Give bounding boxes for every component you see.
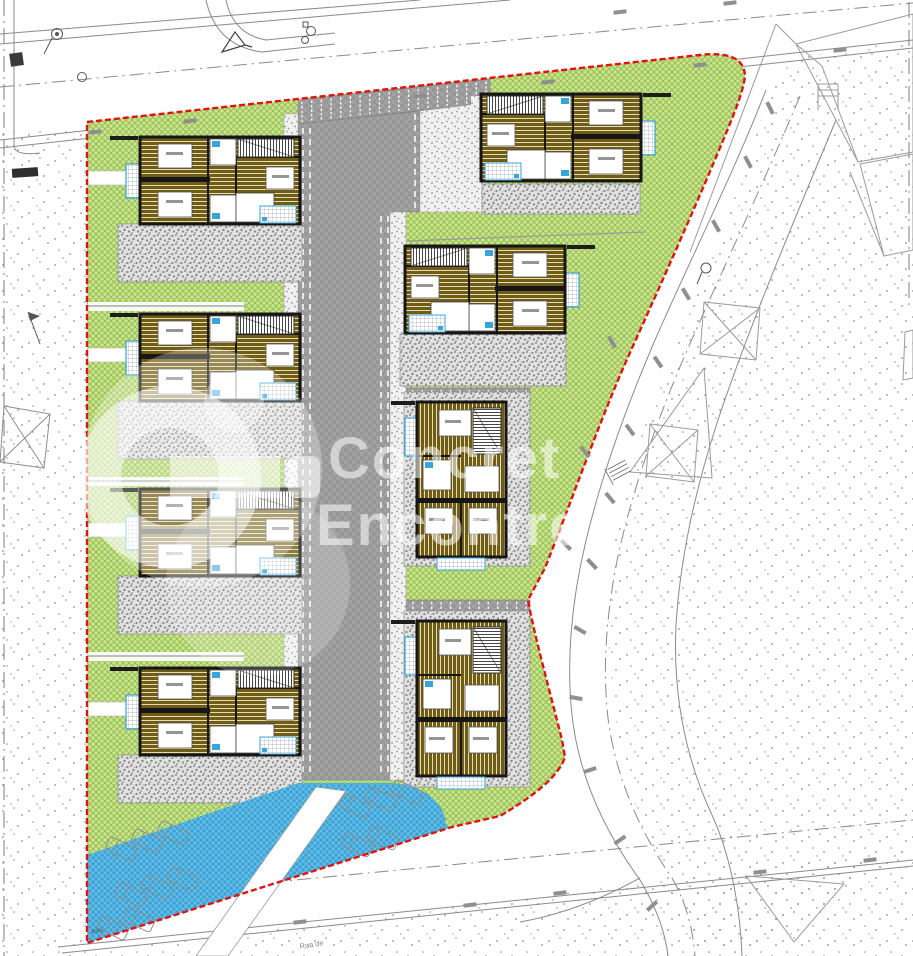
fixture — [212, 141, 220, 147]
side-porch — [641, 121, 655, 155]
site-plan-drawing: RSU Concret Encontre. — [0, 0, 913, 956]
junction-curve-1 — [206, 0, 335, 52]
room-label — [166, 329, 183, 332]
party-wall-stub — [110, 667, 138, 671]
room-label — [445, 420, 461, 423]
room-label — [522, 309, 539, 312]
room-label — [416, 284, 433, 287]
utility-symbol-1 — [78, 73, 87, 82]
interior-wall — [140, 708, 210, 713]
room-label — [445, 639, 461, 642]
bed — [589, 149, 623, 174]
gravel-apron — [482, 184, 640, 214]
bed — [589, 101, 623, 125]
watermark-text-line2: Encontre. — [316, 493, 602, 558]
interior-wall — [495, 286, 565, 291]
top-road-centerline — [0, 3, 913, 87]
watermark-logo-dot — [288, 456, 320, 498]
house-1 — [110, 136, 300, 224]
watermark-text-line1: Concret — [328, 426, 561, 491]
room-label — [166, 152, 183, 155]
room-label — [598, 109, 615, 112]
dimension-tick — [723, 0, 736, 6]
marker-circle-1 — [307, 27, 316, 36]
party-wall-stub — [110, 313, 138, 317]
fixture — [212, 744, 220, 750]
room-label — [272, 352, 289, 355]
party-wall-stub — [391, 620, 415, 624]
bed — [158, 192, 192, 217]
interior-wall — [571, 134, 641, 139]
bed — [158, 144, 192, 168]
side-porch — [126, 695, 140, 729]
marker-filled-bar — [12, 167, 39, 178]
dimension-tick — [293, 919, 306, 925]
dimension-tick — [586, 558, 598, 570]
dimension-tick — [613, 9, 626, 15]
party-wall-stub — [643, 93, 671, 97]
fixture — [262, 217, 267, 221]
room-label — [522, 261, 539, 264]
bed — [158, 723, 192, 748]
marker-square — [303, 22, 308, 27]
fixture — [485, 250, 493, 256]
entry-porch — [437, 777, 485, 789]
room-label — [598, 157, 615, 160]
dimension-tick — [653, 355, 664, 368]
lamp-symbol-1-dot — [56, 33, 59, 36]
house-6 — [405, 245, 595, 333]
bed — [513, 253, 547, 277]
dimension-tick — [569, 695, 582, 701]
fixture — [212, 318, 220, 324]
watermark-logo-bar — [170, 456, 280, 498]
party-wall-stub — [110, 136, 138, 140]
dimension-tick — [711, 219, 721, 232]
room-label — [272, 706, 289, 709]
gravel-apron — [400, 334, 566, 386]
room-label — [166, 683, 183, 686]
room-label — [272, 175, 289, 178]
marker-circle-2 — [302, 37, 309, 44]
fixture — [262, 748, 267, 752]
dimension-tick — [625, 424, 636, 437]
dimension-tick — [583, 766, 597, 774]
side-porch — [126, 164, 140, 198]
room-label — [429, 737, 445, 740]
dimension-tick — [573, 625, 586, 635]
interior-wall — [140, 177, 210, 182]
steps-symbol — [605, 458, 633, 484]
left-ground-stipple — [0, 130, 86, 956]
site-plan-canvas: RSU Concret Encontre. — [0, 0, 913, 956]
room-label — [166, 200, 183, 203]
fixture — [212, 213, 220, 219]
dimension-tick — [681, 287, 691, 300]
dimension-tick — [604, 492, 615, 505]
fixture — [561, 170, 569, 176]
fixture — [514, 174, 519, 178]
bed — [158, 675, 192, 699]
room-label — [492, 132, 509, 135]
side-porch — [405, 637, 417, 675]
party-wall-stub — [391, 401, 415, 405]
marker-filled-square — [9, 52, 24, 67]
fixture — [438, 326, 443, 330]
party-wall-stub — [567, 245, 595, 249]
room-label — [473, 737, 489, 740]
fixture — [212, 672, 220, 678]
fixture — [425, 681, 433, 687]
entry-porch — [437, 558, 485, 570]
bed — [513, 301, 547, 326]
side-porch — [565, 273, 579, 307]
dimension-tick — [614, 835, 627, 846]
fixture — [561, 98, 569, 104]
top-road-upper-edge-1 — [0, 0, 420, 34]
house-5 — [481, 93, 671, 181]
house-4 — [110, 667, 300, 755]
room-label — [166, 731, 183, 734]
hall-room — [465, 685, 499, 711]
fixture — [485, 322, 493, 328]
bed — [158, 321, 192, 345]
gravel-apron — [118, 224, 302, 282]
